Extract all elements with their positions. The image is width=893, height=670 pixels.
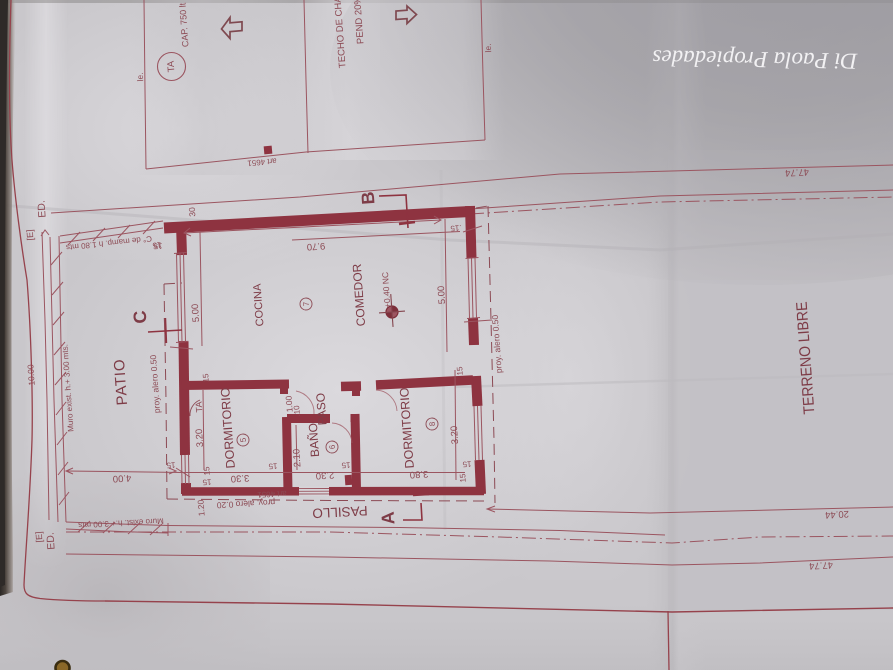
svg-text:ED.: ED. [35, 200, 48, 218]
svg-text:3.80: 3.80 [409, 468, 428, 480]
svg-text:Di Paola Propiedades: Di Paola Propiedades [652, 45, 858, 74]
svg-text:15: 15 [201, 373, 211, 383]
svg-text:1.20: 1.20 [195, 499, 206, 516]
svg-text:15: 15 [341, 460, 351, 470]
svg-text:15: 15 [166, 460, 176, 470]
svg-text:.15: .15 [450, 223, 462, 233]
svg-text:47.74: 47.74 [785, 166, 809, 178]
svg-text:BAÑO: BAÑO [306, 423, 322, 458]
svg-text:[E]: [E] [25, 229, 36, 241]
svg-text:C: C [130, 310, 151, 324]
svg-text:PASO: PASO [313, 392, 329, 425]
svg-text:15: 15 [153, 241, 163, 251]
svg-text:art 4651: art 4651 [257, 489, 287, 500]
svg-text:5.00: 5.00 [436, 285, 448, 304]
svg-text:9.70: 9.70 [306, 240, 325, 252]
svg-text:15: 15 [462, 459, 472, 469]
svg-text:4.00: 4.00 [112, 472, 131, 484]
svg-text:2.30: 2.30 [315, 469, 334, 481]
svg-text:15: 15 [455, 366, 465, 376]
svg-text:15: 15 [268, 461, 278, 471]
svg-text:3.30: 3.30 [230, 472, 249, 484]
svg-text:PATIO: PATIO [111, 358, 131, 406]
svg-text:[E]: [E] [34, 531, 45, 543]
svg-text:5.00: 5.00 [190, 303, 202, 322]
svg-text:A: A [378, 511, 399, 525]
svg-text:2.10: 2.10 [291, 448, 303, 467]
svg-text:15: 15 [202, 477, 212, 487]
svg-text:ED.: ED. [44, 532, 57, 550]
svg-text:PASILLO: PASILLO [312, 503, 368, 521]
svg-text:le.: le. [135, 72, 146, 82]
svg-text:30: 30 [187, 207, 198, 217]
svg-text:47.74: 47.74 [809, 559, 833, 571]
svg-text:B: B [358, 191, 379, 205]
svg-text:le.: le. [483, 43, 494, 53]
svg-text:3.20: 3.20 [194, 428, 206, 447]
svg-text:3.20: 3.20 [449, 425, 461, 444]
svg-text:15: 15 [202, 466, 212, 476]
svg-text:TA: TA [166, 60, 178, 73]
svg-text:20.44: 20.44 [825, 508, 849, 520]
svg-text:15: 15 [458, 473, 468, 483]
svg-text:.10: .10 [292, 405, 302, 417]
